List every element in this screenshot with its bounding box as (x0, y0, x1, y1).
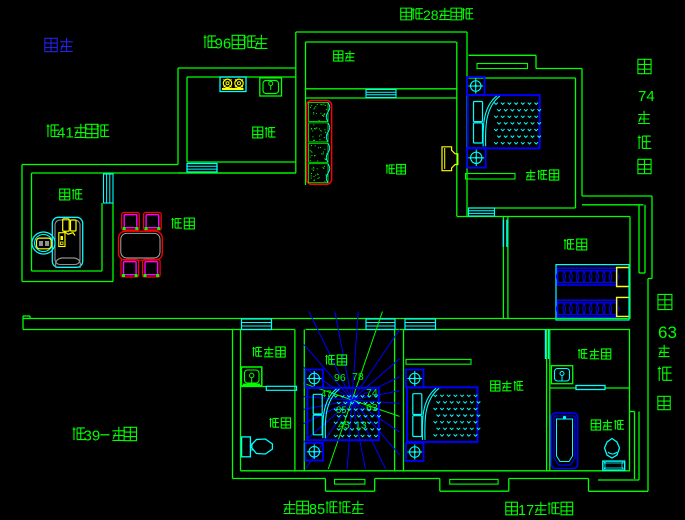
svg-text:74: 74 (638, 88, 655, 105)
svg-text:78: 78 (352, 371, 364, 383)
svg-text:85: 85 (336, 405, 347, 416)
svg-text:96: 96 (215, 36, 232, 53)
svg-text:17: 17 (518, 503, 534, 519)
svg-text:41: 41 (57, 125, 74, 142)
svg-text:39: 39 (84, 428, 101, 445)
svg-text:85: 85 (309, 502, 325, 518)
svg-text:63: 63 (658, 323, 677, 342)
svg-text:28: 28 (423, 7, 439, 23)
svg-text:96: 96 (334, 372, 346, 384)
